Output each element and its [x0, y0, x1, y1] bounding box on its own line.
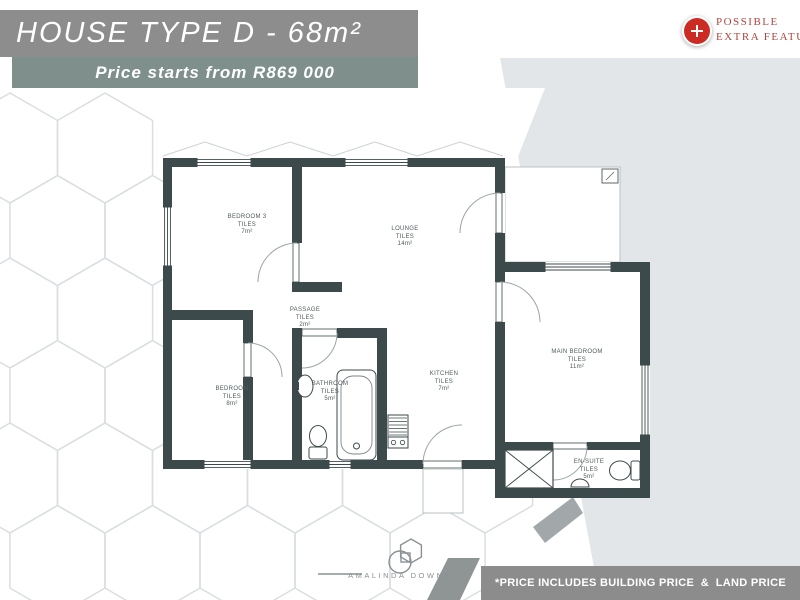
room-label-bedroom: BEDROOM TILES 8m² [215, 386, 248, 409]
room-label-main-bedroom: MAIN BEDROOM TILES 11m² [551, 349, 602, 372]
kitchen-door-leaf [423, 461, 462, 468]
main-bedroom-door-leaf [496, 282, 502, 322]
basin-icon [297, 375, 313, 397]
plus-icon [684, 18, 710, 44]
toilet-icon [631, 461, 640, 480]
bedroom-door-leaf [244, 343, 251, 377]
window [327, 460, 353, 469]
bathroom-door-leaf [302, 329, 337, 336]
room-label-bedroom-3: BEDROOM 3 TILES 7m² [228, 214, 267, 237]
extra-feature-badge [682, 16, 712, 46]
entrance-door-leaf [496, 193, 502, 233]
page-title: HOUSE TYPE D - 68m² [0, 10, 418, 57]
kitchen-stove-icon [388, 415, 408, 448]
room-label-lounge: LOUNGE TILES 14m² [391, 226, 418, 249]
room-label-bathroom: BATHROOM TILES 5m² [312, 381, 349, 404]
ensuite-door-leaf [553, 443, 587, 449]
room-label-kitchen: KITCHEN TILES 7m² [430, 371, 458, 394]
window [195, 158, 253, 167]
toilet-icon [310, 426, 327, 447]
disclaimer-banner: *PRICE INCLUDES BUILDING PRICE & LAND PR… [481, 566, 800, 600]
window [543, 262, 613, 272]
bedroom3-door-leaf [293, 243, 299, 282]
window [343, 158, 410, 167]
price-banner: Price starts from R869 000 [12, 57, 418, 88]
patio-outline [505, 167, 620, 262]
room-label-passage: PASSAGE TILES 2m² [290, 307, 320, 330]
amalinda-downs-logo [300, 538, 440, 588]
flyer-page: BEDROOM 3 TILES 7m² LOUNGE TILES 14m² PA… [0, 0, 800, 600]
extra-feature-text: POSSIBLE EXTRA FEATURES [716, 15, 800, 49]
porch-outline [423, 469, 463, 513]
roofline [163, 142, 503, 156]
window [640, 363, 650, 437]
window [202, 460, 253, 469]
logo-text: AMALINDA DOWNS [320, 571, 480, 580]
room-label-en-suite: EN-SUITE TILES 5m² [574, 459, 604, 482]
shower-icon [505, 450, 553, 488]
window [163, 205, 172, 268]
